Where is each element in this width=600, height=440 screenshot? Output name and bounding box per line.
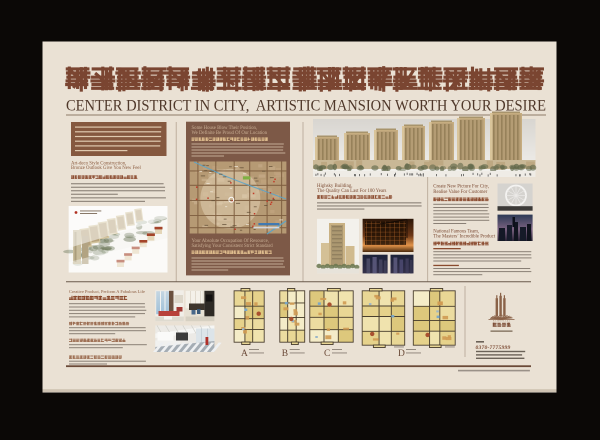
svg-text:The Masters’ Incredible Produc: The Masters’ Incredible Product (433, 235, 496, 240)
svg-text:Realise Value For Customer: Realise Value For Customer (433, 190, 487, 195)
svg-text:C: C (324, 349, 330, 359)
svg-text:CENTER DISTRICT IN CITY, ARTI: CENTER DISTRICT IN CITY, ARTISTIC MANSIO… (66, 98, 546, 115)
svg-text:K A I D I P L A Z A: K A I D I P L A Z A (493, 320, 511, 323)
svg-text:Bronze Outlook Give You New Fe: Bronze Outlook Give You New Feel (71, 166, 141, 171)
svg-text:We Definite Be Proud Of Our Lo: We Definite Be Proud Of Our Location (192, 131, 268, 136)
svg-text:D: D (398, 349, 405, 359)
svg-text:A: A (241, 349, 248, 359)
svg-text:The Quality Can Last For 100 Y: The Quality Can Last For 100 Years (317, 189, 387, 194)
svg-text:Satisfying Your Consistent Str: Satisfying Your Consistent Strict Standa… (192, 244, 274, 249)
svg-text:Create New Picture For City,: Create New Picture For City, (433, 185, 489, 190)
svg-text:B: B (282, 349, 288, 359)
svg-text:0370-7775999: 0370-7775999 (476, 345, 511, 351)
